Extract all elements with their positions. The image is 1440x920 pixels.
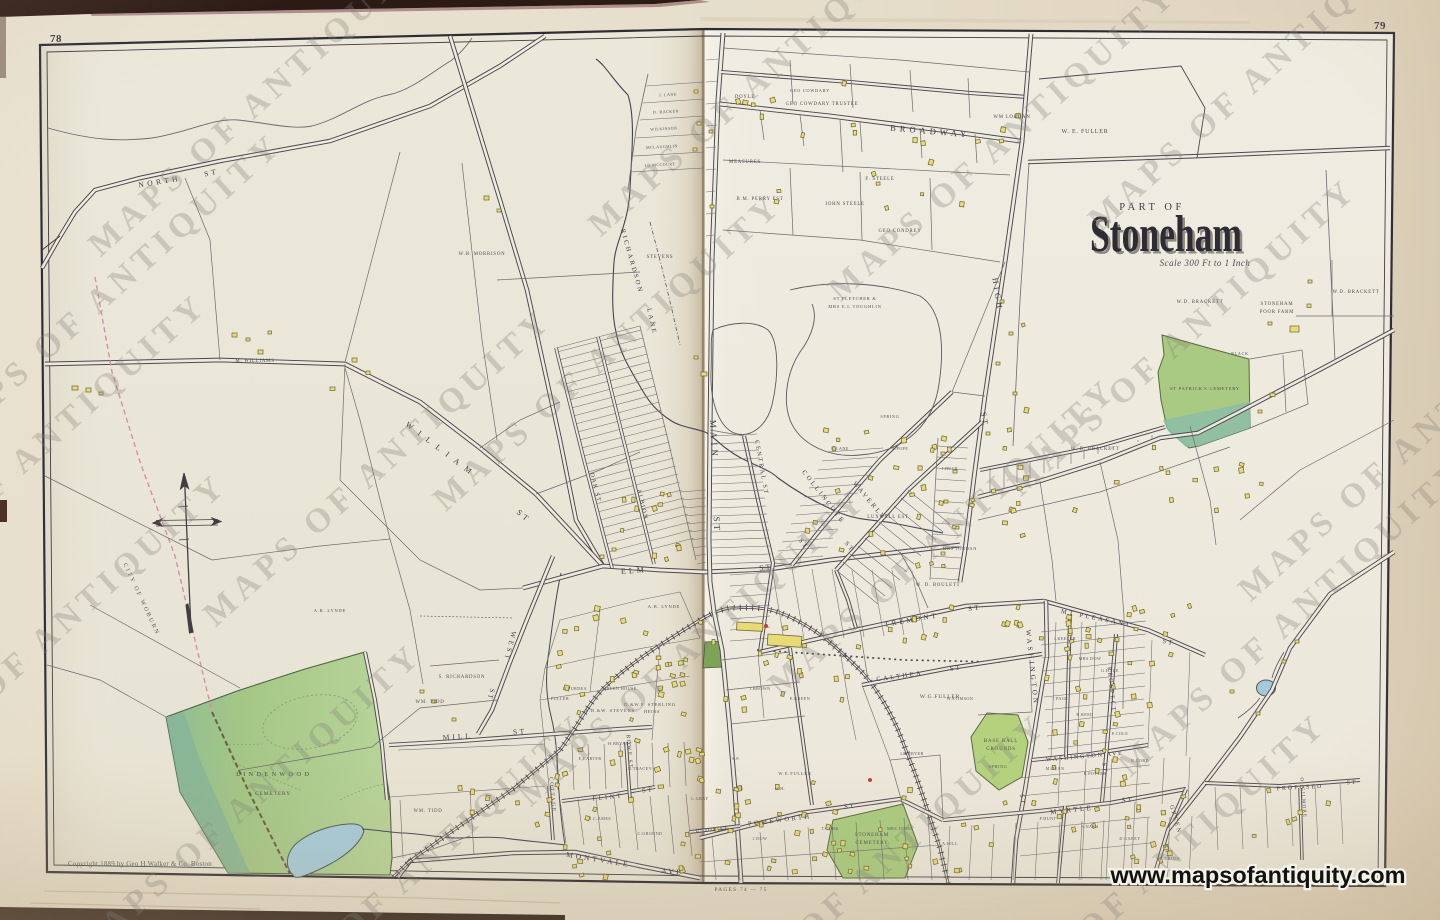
svg-text:www.mapsofantiquity.com: www.mapsofantiquity.com	[1109, 862, 1405, 888]
